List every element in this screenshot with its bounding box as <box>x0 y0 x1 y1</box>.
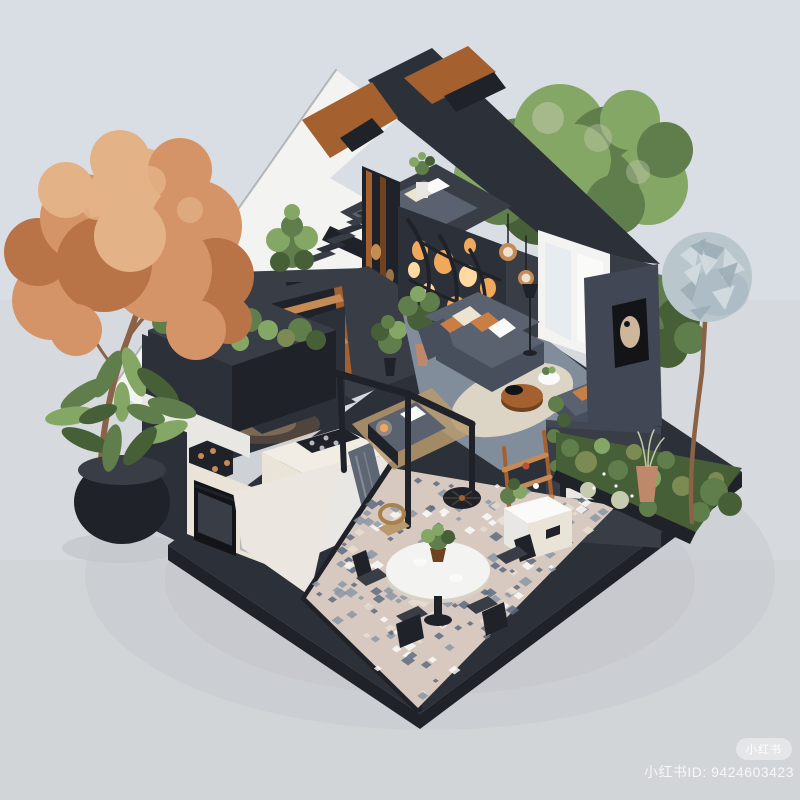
xiaohongshu-badge: 小红书 <box>736 738 792 760</box>
coffee-table <box>501 384 543 412</box>
xiaohongshu-id-text: 小红书ID: 9424603423 <box>644 762 794 782</box>
loft-plant-pot <box>416 182 428 198</box>
isometric-house-render <box>0 0 800 800</box>
xiaohongshu-image-post: 小红书 小红书ID: 9424603423 <box>0 0 800 800</box>
badge-label: 小红书 <box>746 741 782 757</box>
fire-bowl <box>443 487 481 509</box>
feature-wall <box>584 264 662 430</box>
